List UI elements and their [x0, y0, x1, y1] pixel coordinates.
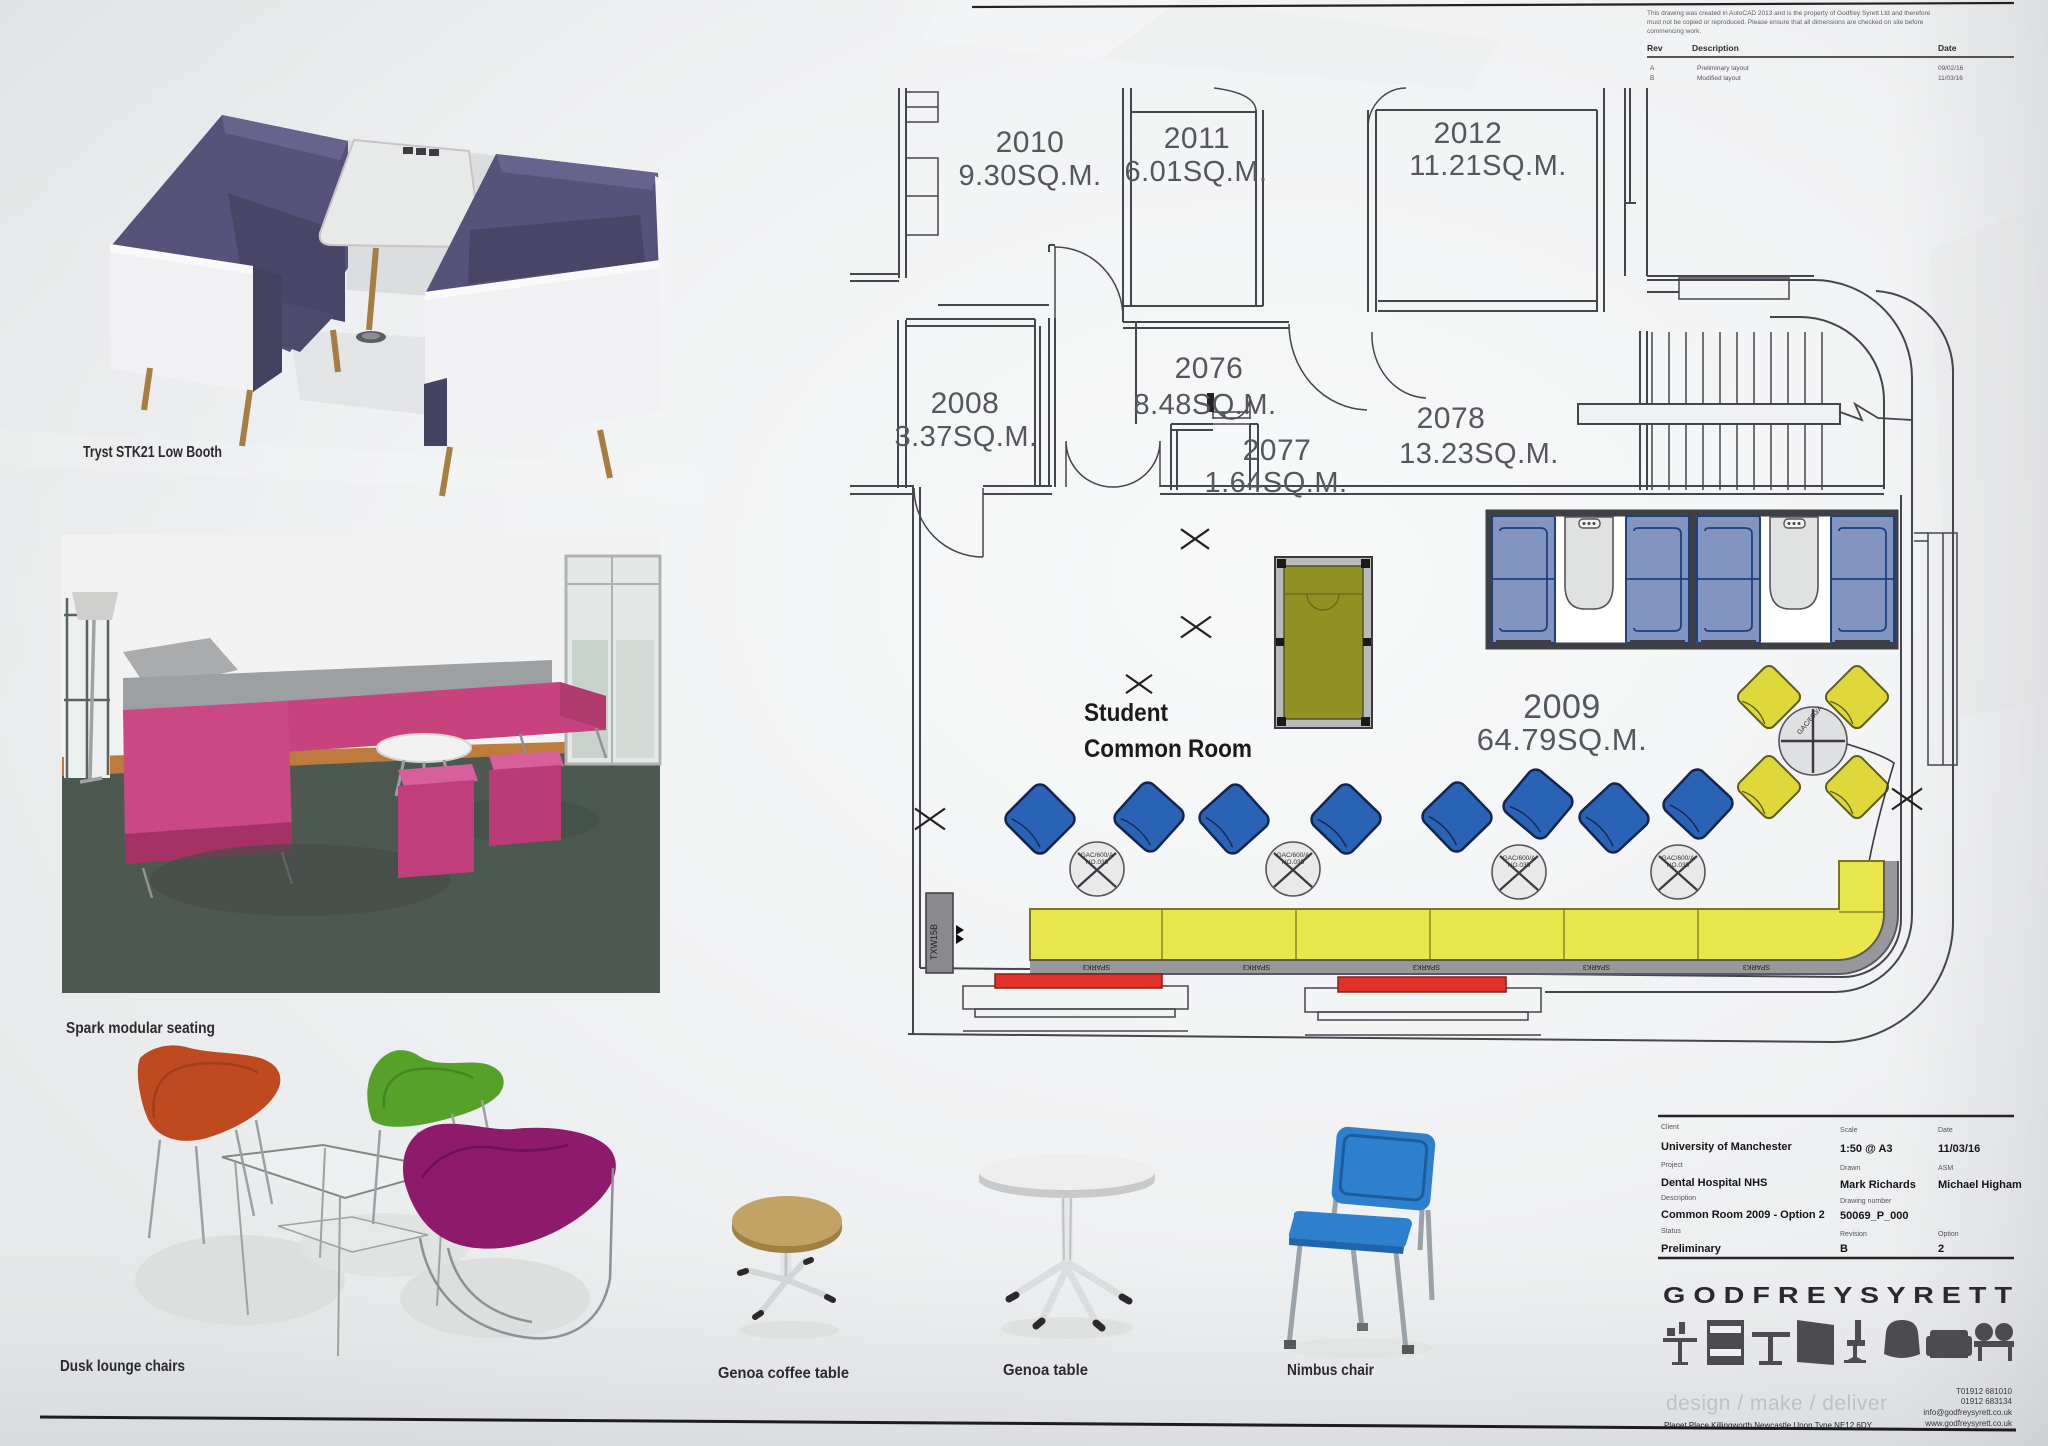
svg-text:Michael Higham: Michael Higham	[1938, 1179, 2022, 1191]
svg-text:2076: 2076	[1175, 352, 1244, 385]
svg-text:must not be copied or reproduc: must not be copied or reproduced. Please…	[1647, 19, 1924, 26]
svg-text:Drawn: Drawn	[1840, 1165, 1860, 1172]
svg-text:design / make / deliver: design / make / deliver	[1666, 1392, 1888, 1415]
svg-text:11/03/16: 11/03/16	[1938, 75, 1963, 82]
svg-text:Client: Client	[1661, 1124, 1679, 1131]
svg-text:GAC/600/A: GAC/600/A	[1081, 852, 1115, 859]
svg-text:2012: 2012	[1434, 117, 1503, 150]
svg-text:Date: Date	[1938, 1127, 1953, 1134]
svg-text:Student: Student	[1084, 699, 1169, 727]
svg-text:TXW15B: TXW15B	[929, 924, 939, 960]
svg-text:NO.035: NO.035	[1667, 862, 1690, 869]
svg-text:2077: 2077	[1243, 434, 1312, 467]
svg-text:SPARK3: SPARK3	[1583, 963, 1610, 970]
svg-text:www.godfreysyrett.co.uk: www.godfreysyrett.co.uk	[1924, 1419, 2013, 1428]
svg-text:Spark modular seating: Spark modular seating	[66, 1020, 215, 1037]
svg-text:Description: Description	[1661, 1195, 1696, 1202]
svg-text:11.21SQ.M.: 11.21SQ.M.	[1409, 150, 1567, 182]
svg-text:commencing work.: commencing work.	[1647, 28, 1701, 35]
svg-text:SPARK3: SPARK3	[1743, 963, 1770, 970]
svg-text:Description: Description	[1692, 43, 1739, 53]
svg-text:This drawing was created in Au: This drawing was created in AutoCAD 2013…	[1647, 10, 1931, 17]
svg-text:50069_P_000: 50069_P_000	[1840, 1210, 1909, 1222]
svg-text:Drawing number: Drawing number	[1840, 1198, 1892, 1205]
svg-text:G O D F R E Y S Y R E T T: G O D F R E Y S Y R E T T	[1663, 1282, 2012, 1308]
svg-text:2: 2	[1938, 1243, 1944, 1255]
svg-text:Tryst STK21 Low Booth: Tryst STK21 Low Booth	[83, 444, 222, 461]
svg-text:2008: 2008	[931, 387, 1000, 420]
svg-text:ASM: ASM	[1938, 1165, 1953, 1172]
svg-text:B: B	[1650, 75, 1654, 82]
svg-text:Status: Status	[1661, 1228, 1681, 1235]
svg-text:Date: Date	[1938, 43, 1957, 53]
svg-text:Dental Hospital NHS: Dental Hospital NHS	[1661, 1177, 1767, 1189]
svg-text:Genoa coffee table: Genoa coffee table	[718, 1365, 849, 1382]
svg-text:Dusk lounge chairs: Dusk lounge chairs	[60, 1358, 185, 1375]
svg-text:B: B	[1840, 1243, 1848, 1255]
svg-text:University of Manchester: University of Manchester	[1661, 1141, 1793, 1153]
svg-text:NO.035: NO.035	[1086, 859, 1109, 866]
svg-text:9.30SQ.M.: 9.30SQ.M.	[958, 160, 1101, 192]
svg-text:64.79SQ.M.: 64.79SQ.M.	[1477, 722, 1647, 757]
svg-text:NO.035: NO.035	[1508, 862, 1531, 869]
svg-text:SPARK3: SPARK3	[1243, 963, 1270, 970]
svg-text:SPARK3: SPARK3	[1413, 963, 1440, 970]
svg-text:13.23SQ.M.: 13.23SQ.M.	[1399, 438, 1559, 470]
svg-text:GAC/600/A: GAC/600/A	[1277, 852, 1311, 859]
svg-text:6.01SQ.M.: 6.01SQ.M.	[1124, 156, 1267, 188]
svg-text:Modified layout: Modified layout	[1697, 75, 1741, 82]
svg-text:Nimbus chair: Nimbus chair	[1287, 1362, 1374, 1379]
svg-text:8.48SQ.M.: 8.48SQ.M.	[1133, 389, 1276, 421]
svg-text:GAC/600/A: GAC/600/A	[1662, 855, 1696, 862]
svg-text:T01912 681010: T01912 681010	[1956, 1387, 2013, 1396]
svg-text:11/03/16: 11/03/16	[1938, 1143, 1980, 1155]
svg-text:Common Room: Common Room	[1084, 735, 1252, 763]
svg-text:info@godfreysyrett.co.uk: info@godfreysyrett.co.uk	[1923, 1408, 2013, 1417]
svg-text:3.37SQ.M.: 3.37SQ.M.	[894, 421, 1037, 453]
svg-text:Common Room 2009 - Option 2: Common Room 2009 - Option 2	[1661, 1209, 1825, 1221]
svg-text:Scale: Scale	[1840, 1127, 1858, 1134]
svg-text:Revision: Revision	[1840, 1231, 1867, 1238]
svg-text:01912 683134: 01912 683134	[1961, 1397, 2013, 1406]
svg-text:A: A	[1650, 65, 1655, 72]
svg-text:NO.035: NO.035	[1282, 859, 1305, 866]
svg-text:2010: 2010	[996, 126, 1065, 159]
svg-text:1.64SQ.M.: 1.64SQ.M.	[1204, 467, 1347, 499]
svg-text:2009: 2009	[1523, 688, 1601, 726]
svg-text:Preliminary: Preliminary	[1661, 1243, 1722, 1255]
svg-text:Preliminary layout: Preliminary layout	[1697, 65, 1749, 72]
svg-text:Genoa table: Genoa table	[1003, 1362, 1088, 1379]
svg-text:Rev: Rev	[1647, 43, 1663, 53]
svg-text:09/02/16: 09/02/16	[1938, 65, 1964, 72]
svg-text:2078: 2078	[1417, 402, 1486, 435]
svg-text:SPARK3: SPARK3	[1083, 963, 1110, 970]
svg-text:GAC/600/A: GAC/600/A	[1503, 855, 1537, 862]
svg-text:Option: Option	[1938, 1231, 1959, 1238]
svg-text:1:50 @ A3: 1:50 @ A3	[1840, 1143, 1893, 1155]
svg-text:Project: Project	[1661, 1162, 1683, 1169]
svg-text:2011: 2011	[1164, 122, 1231, 155]
svg-text:Mark Richards: Mark Richards	[1840, 1179, 1916, 1191]
